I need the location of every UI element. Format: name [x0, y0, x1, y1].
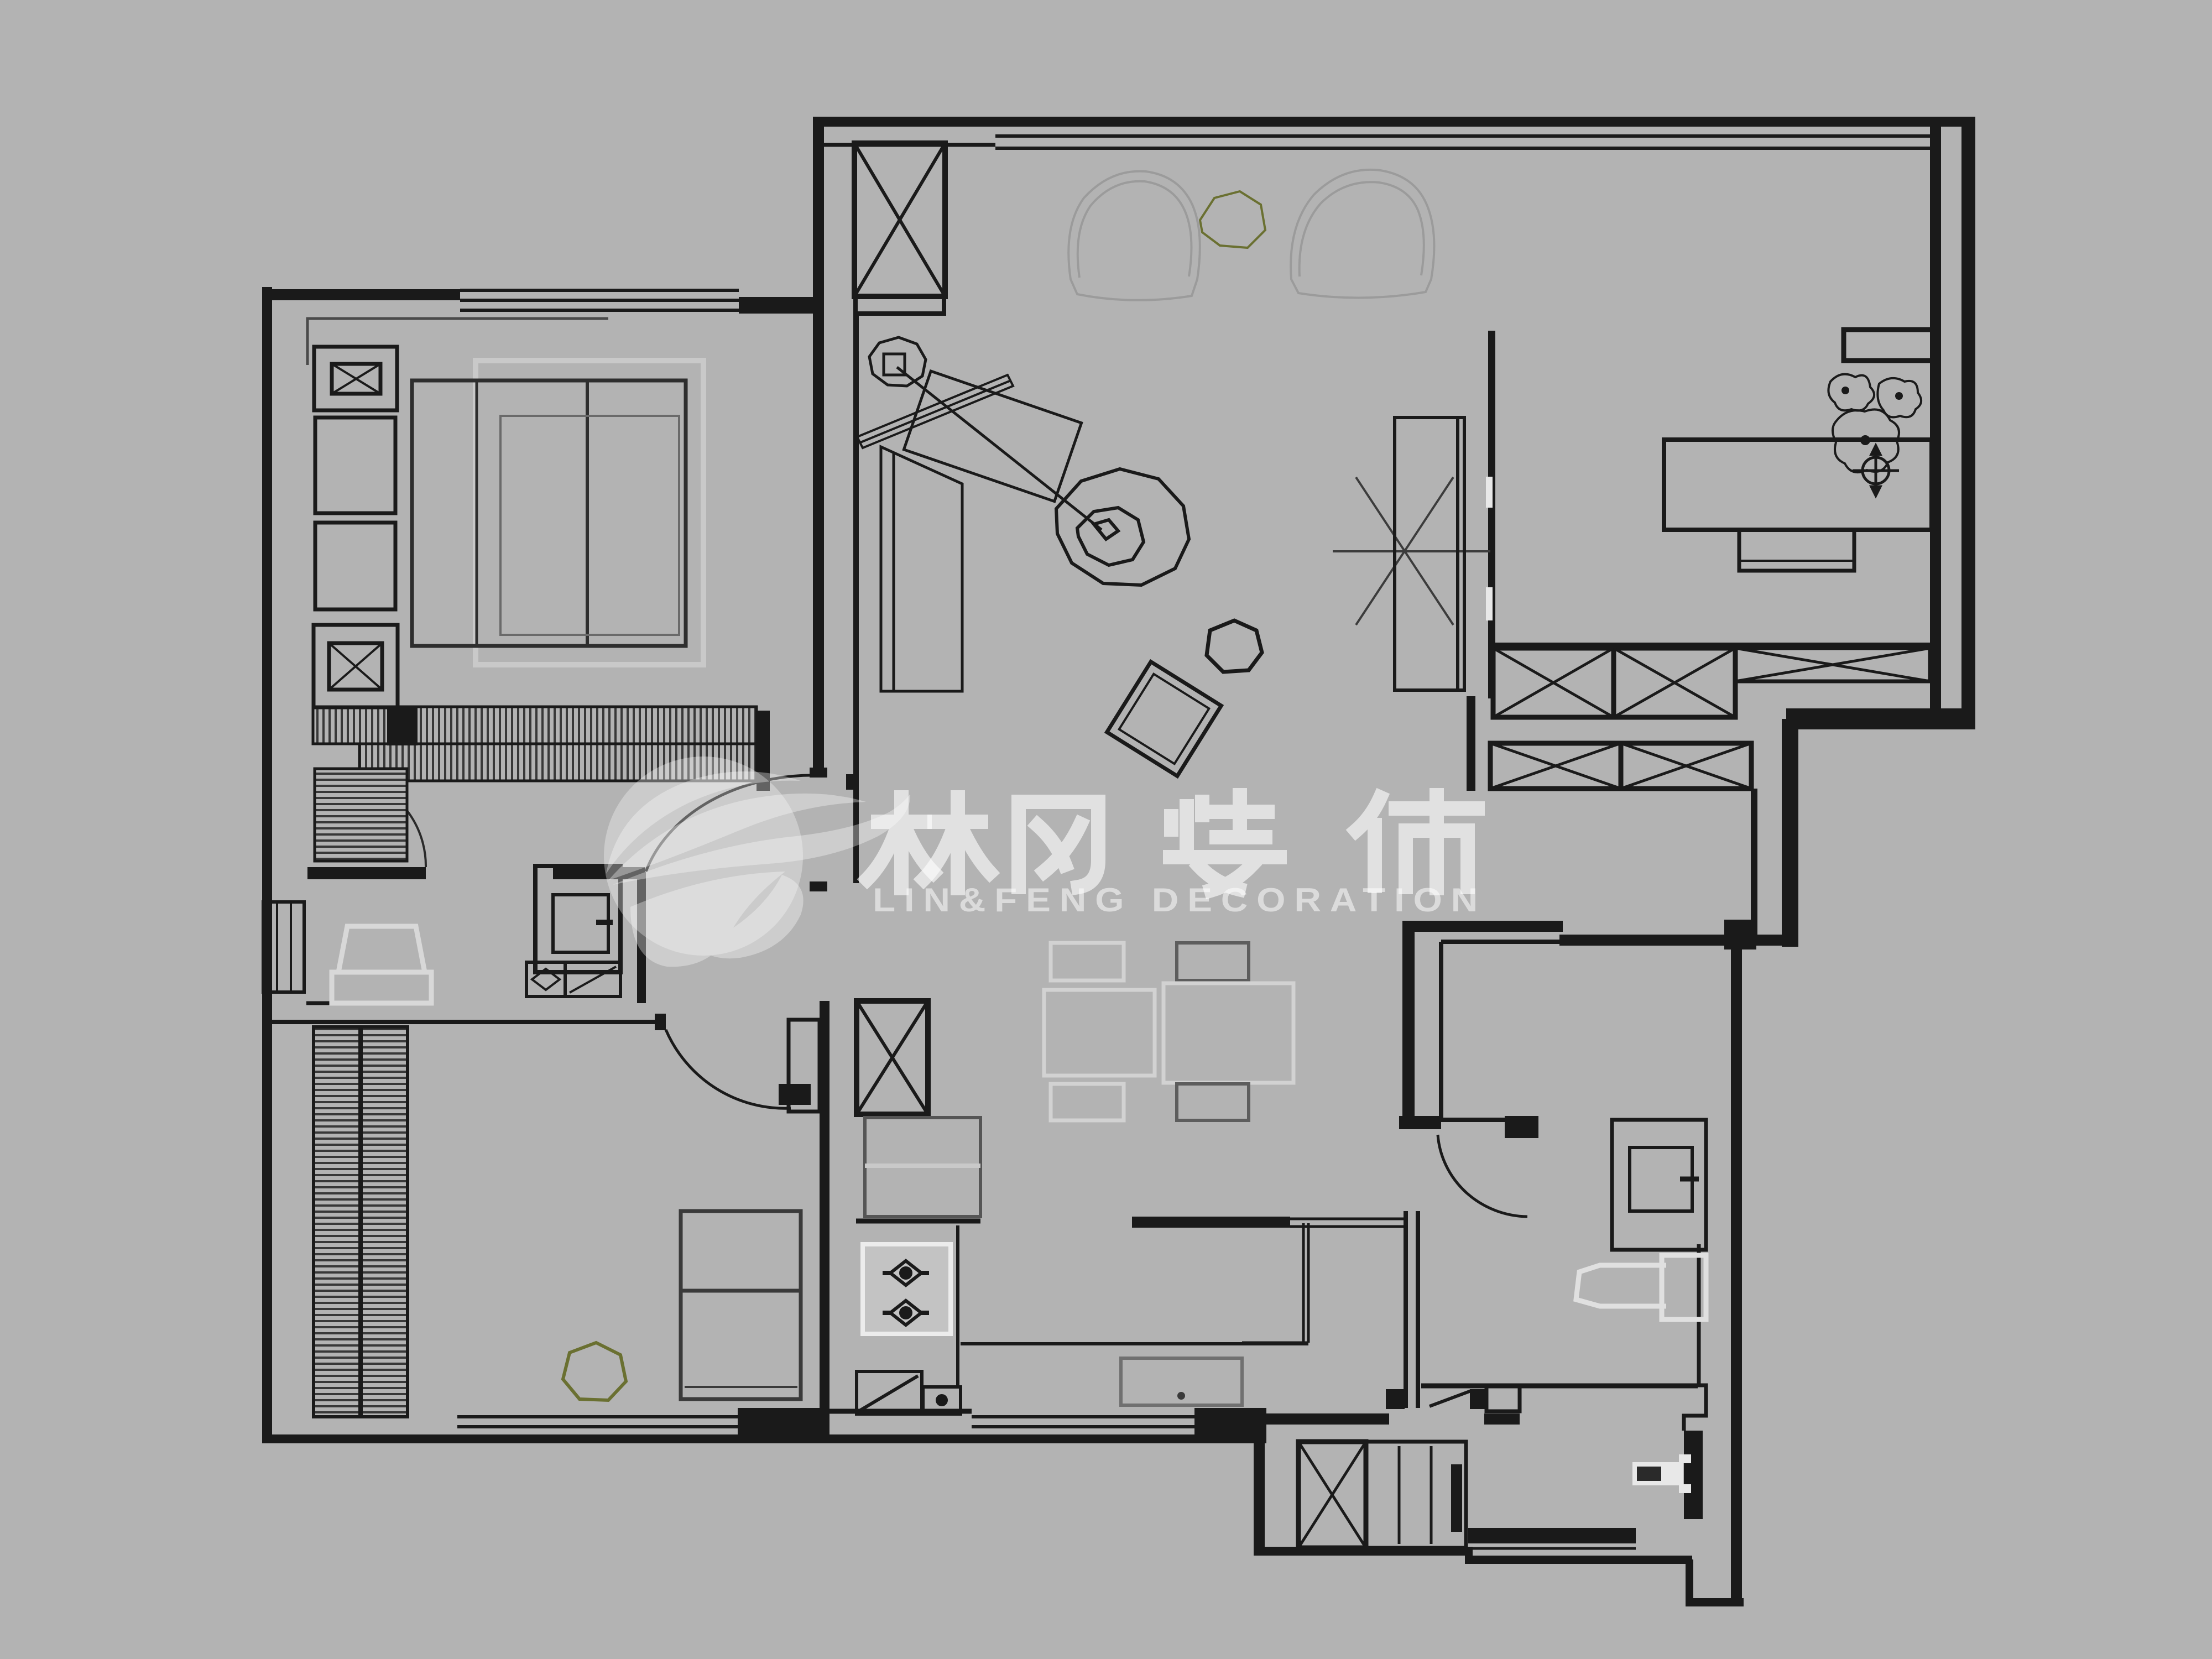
svg-text:LIN&FENG DECORATION: LIN&FENG DECORATION [873, 881, 1486, 919]
